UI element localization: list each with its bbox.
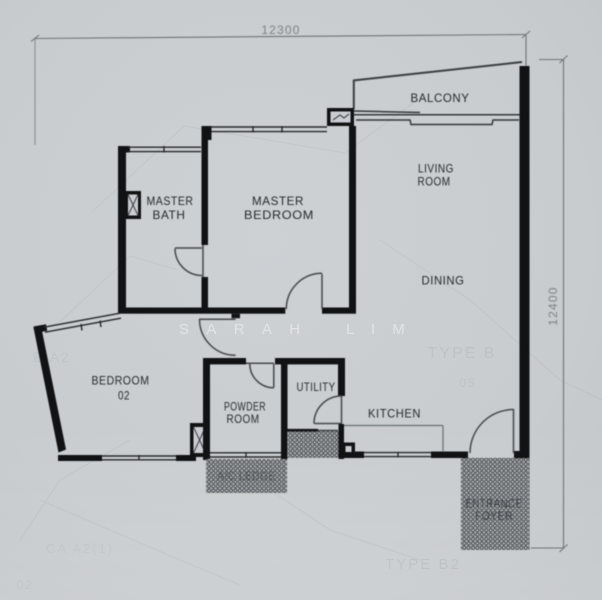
- svg-text:BEDROOM: BEDROOM: [244, 208, 314, 222]
- svg-text:MASTER: MASTER: [147, 194, 194, 208]
- svg-text:KITCHEN: KITCHEN: [368, 407, 421, 421]
- svg-text:02: 02: [16, 578, 33, 592]
- svg-text:UTILITY: UTILITY: [297, 380, 336, 394]
- svg-text:ROOM: ROOM: [227, 412, 260, 426]
- svg-text:12400: 12400: [546, 286, 560, 325]
- svg-text:DINING: DINING: [422, 274, 465, 288]
- svg-text:CA A2(1): CA A2(1): [46, 541, 114, 556]
- svg-text:12300: 12300: [261, 23, 300, 37]
- svg-text:MASTER: MASTER: [252, 194, 304, 208]
- svg-text:TYPE B2: TYPE B2: [385, 556, 461, 573]
- svg-text:S A R A H: S A R A H: [179, 321, 307, 338]
- svg-text:BEDROOM: BEDROOM: [92, 374, 150, 388]
- svg-text:BATH: BATH: [153, 208, 186, 222]
- svg-text:BALCONY: BALCONY: [411, 91, 470, 105]
- svg-text:TYPE B: TYPE B: [428, 345, 497, 362]
- svg-text:A/C LEDGE: A/C LEDGE: [218, 469, 276, 483]
- svg-text:ROOM: ROOM: [418, 175, 451, 189]
- svg-text:FOYER: FOYER: [475, 509, 513, 523]
- svg-text:02: 02: [118, 389, 130, 403]
- svg-text:LIVING: LIVING: [418, 162, 454, 176]
- svg-text:L I M: L I M: [346, 321, 411, 338]
- svg-text:05: 05: [459, 376, 476, 390]
